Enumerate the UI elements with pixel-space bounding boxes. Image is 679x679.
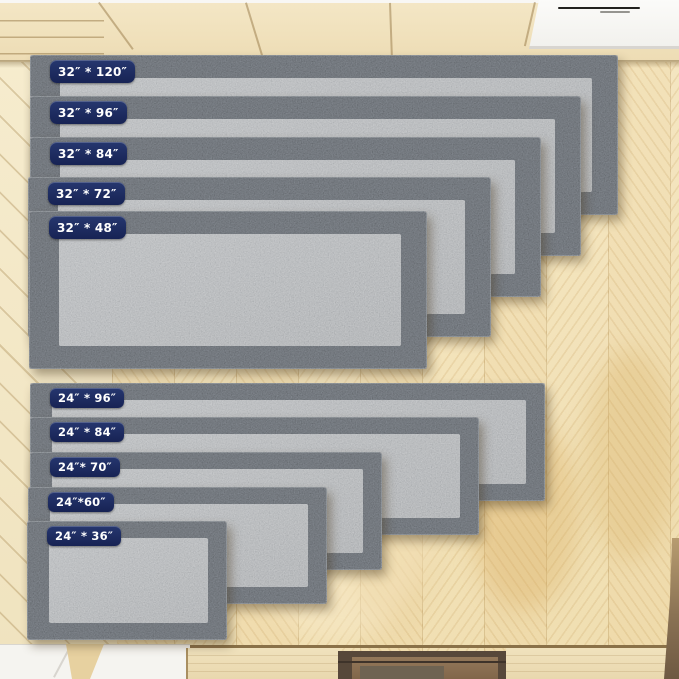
rug-32x48: 32″ * 48″ xyxy=(29,211,427,369)
size-badge: 24″* 70″ xyxy=(50,457,120,477)
kitchen-floor-scene: 32″ * 120″ 32″ * 96″ 32″ * 84″ 32″ * 72″… xyxy=(0,0,679,679)
size-label: 24″*60″ xyxy=(56,495,106,509)
size-badge: 24″*60″ xyxy=(48,492,114,512)
size-label: 32″ * 120″ xyxy=(58,65,127,79)
cabinet-top-white-strip xyxy=(0,0,540,3)
size-badge: 32″ * 48″ xyxy=(49,216,126,239)
cabinet-plank-lines xyxy=(0,5,104,60)
size-badge: 24″ * 84″ xyxy=(50,422,124,442)
size-label: 32″ * 72″ xyxy=(56,187,117,201)
size-label: 32″ * 84″ xyxy=(58,147,119,161)
rug-pile xyxy=(49,538,208,623)
doorway-gray-mat xyxy=(360,666,444,679)
size-label: 24″ * 84″ xyxy=(58,425,116,439)
rug-pile xyxy=(59,234,401,346)
counter-vent-slit xyxy=(558,7,640,9)
size-label: 24″ * 36″ xyxy=(55,529,113,543)
size-badge: 24″ * 96″ xyxy=(50,388,124,408)
bottom-wood-strip-right xyxy=(506,648,679,679)
size-badge: 32″ * 84″ xyxy=(50,142,127,165)
bottom-wood-strip-left xyxy=(186,648,340,679)
size-label: 24″ * 96″ xyxy=(58,391,116,405)
size-label: 32″ * 96″ xyxy=(58,106,119,120)
size-badge: 24″ * 36″ xyxy=(47,526,121,546)
door-track-line xyxy=(338,661,506,663)
size-badge: 32″ * 96″ xyxy=(50,101,127,124)
size-badge: 32″ * 120″ xyxy=(50,60,135,83)
floor-tone-patch xyxy=(585,350,675,560)
counter-vent-slit xyxy=(600,11,630,13)
cabinet-seam xyxy=(245,2,264,58)
size-badge: 32″ * 72″ xyxy=(48,182,125,205)
recessed-doorway-mat xyxy=(338,651,506,679)
size-label: 32″ * 48″ xyxy=(57,221,118,235)
rug-24x36: 24″ * 36″ xyxy=(27,521,227,640)
size-label: 24″* 70″ xyxy=(58,460,112,474)
cabinet-seam xyxy=(389,3,393,61)
